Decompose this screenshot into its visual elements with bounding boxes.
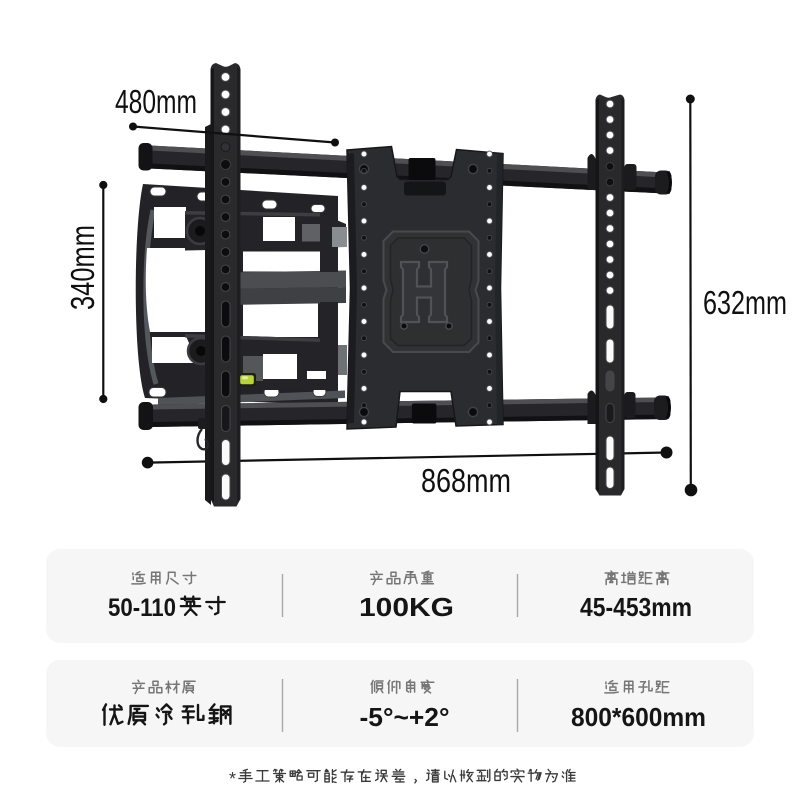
svg-text:-5°~+2°: -5°~+2° xyxy=(360,702,450,732)
svg-text:50-110: 50-110 xyxy=(108,594,176,622)
svg-text:632mm: 632mm xyxy=(703,284,787,321)
svg-text:*: * xyxy=(229,769,236,789)
svg-text:45-453mm: 45-453mm xyxy=(580,592,692,622)
svg-text:340mm: 340mm xyxy=(64,225,101,310)
svg-text:868mm: 868mm xyxy=(421,462,511,499)
svg-text:480mm: 480mm xyxy=(115,83,197,120)
svg-text:800*600mm: 800*600mm xyxy=(571,702,706,732)
svg-text:100KG: 100KG xyxy=(359,592,454,622)
